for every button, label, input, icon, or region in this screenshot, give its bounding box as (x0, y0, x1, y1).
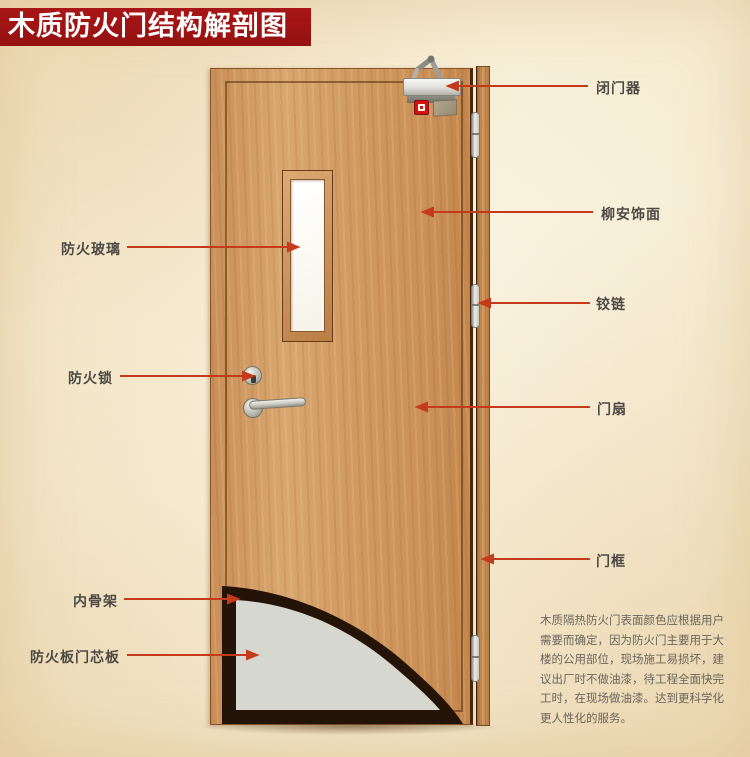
label-plate-icon (433, 99, 457, 117)
door-frame-jamb (476, 66, 490, 726)
title-banner: 木质防火门结构解剖图 (0, 8, 311, 46)
hinge-bottom-icon (471, 635, 480, 682)
description-line: 工时，在现场做油漆。达到更科学化 (540, 689, 722, 709)
page-title: 木质防火门结构解剖图 (8, 11, 288, 42)
hinge-middle-icon (471, 284, 480, 328)
hinge-top-icon (471, 112, 480, 158)
label-hinge: 铰链 (596, 294, 626, 314)
description-line: 楼的公用部位，现场施工易损坏，建 (540, 650, 722, 670)
fire-glass-pane (290, 179, 325, 332)
label-inner-frame: 内骨架 (73, 591, 118, 611)
description-line: 更人性化的服务。 (540, 709, 722, 729)
fire-lock-cylinder-icon (243, 366, 262, 385)
label-door-closer: 闭门器 (596, 78, 641, 98)
label-lauan-veneer: 柳安饰面 (601, 204, 661, 224)
label-fire-glass: 防火玻璃 (61, 239, 121, 259)
label-fire-lock: 防火锁 (68, 368, 113, 388)
door-closer-icon (403, 78, 461, 96)
label-fire-board-core: 防火板门芯板 (30, 647, 120, 667)
fire-alarm-badge-icon (414, 100, 429, 115)
leader-hinge (480, 299, 590, 307)
label-door-leaf: 门扇 (597, 399, 627, 419)
description-line: 议出厂时不做油漆，待工程全面快完 (540, 670, 722, 690)
description-line: 需要而确定，因为防火门主要用于大 (540, 631, 722, 651)
door-shadow (203, 723, 497, 735)
leader-door-frame (483, 555, 590, 563)
keyhole-icon (251, 375, 256, 383)
description-line: 木质隔热防火门表面颜色应根据用户 (540, 611, 722, 631)
label-door-frame: 门框 (596, 551, 626, 571)
vision-window (282, 170, 333, 342)
badge-dot (420, 106, 423, 109)
door-groove-outline (225, 81, 463, 712)
description-paragraph: 木质隔热防火门表面颜色应根据用户 需要而确定，因为防火门主要用于大 楼的公用部位… (540, 611, 722, 728)
diagram-canvas: 木质防火门结构解剖图 防火玻璃 防火锁 内骨架 防火板门芯板 闭门器 柳安饰面 … (0, 0, 750, 757)
